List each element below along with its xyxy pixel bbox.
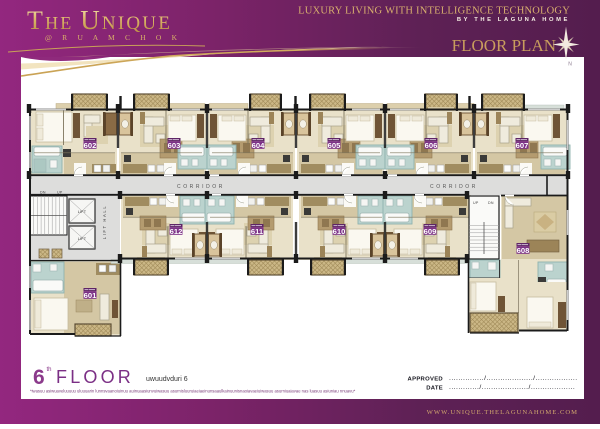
svg-text:612: 612 <box>170 227 183 236</box>
svg-text:UP: UP <box>473 201 479 205</box>
svg-text:DN: DN <box>40 191 46 195</box>
svg-text:606: 606 <box>425 141 438 150</box>
svg-text:DN: DN <box>488 201 494 205</box>
svg-text:601: 601 <box>84 291 97 300</box>
svg-text:LUXURY LIVING WITH INTELLIGENC: LUXURY LIVING WITH INTELLIGENCE TECHNOLO… <box>298 6 570 17</box>
svg-text:609: 609 <box>424 227 437 236</box>
svg-text:611: 611 <box>251 227 264 236</box>
svg-text:@ R U A M C H O K: @ R U A M C H O K <box>45 33 181 42</box>
svg-text:N: N <box>568 62 572 68</box>
svg-text:DATE: DATE <box>426 386 443 392</box>
svg-text:CORRIDOR: CORRIDOR <box>177 184 225 190</box>
svg-text:FLOOR PLAN: FLOOR PLAN <box>452 36 556 55</box>
svg-text:604: 604 <box>252 141 265 150</box>
svg-text:uwuudvduri 6: uwuudvduri 6 <box>146 376 188 383</box>
svg-text:UP: UP <box>57 191 63 195</box>
svg-text:603: 603 <box>168 141 181 150</box>
svg-text:LIFT: LIFT <box>78 210 87 214</box>
svg-text:LIFT: LIFT <box>78 237 87 241</box>
svg-text:FLOOR: FLOOR <box>56 367 134 387</box>
svg-text:th: th <box>47 367 52 373</box>
svg-text:605: 605 <box>328 141 341 150</box>
svg-text:BY THE LAGUNA HOME: BY THE LAGUNA HOME <box>457 17 570 23</box>
svg-text:607: 607 <box>516 141 529 150</box>
svg-text:610: 610 <box>333 227 346 236</box>
svg-text:APPROVED: APPROVED <box>408 377 443 383</box>
svg-text:LIFT HALL: LIFT HALL <box>102 205 107 240</box>
svg-text:CORRIDOR: CORRIDOR <box>430 184 478 190</box>
svg-text:............./................: ............./..................../.....… <box>449 384 575 391</box>
svg-text:6: 6 <box>33 366 45 389</box>
svg-text:602: 602 <box>84 141 97 150</box>
svg-text:.............../..............: .............../..................../...… <box>449 375 578 382</box>
svg-text:608: 608 <box>517 246 530 255</box>
svg-text:*iwasuu asiwuaveluuuuu uluuuar: *iwasuu asiwuaveluuuuu uluuuarin lunnsva… <box>30 389 356 394</box>
svg-text:WWW.UNIQUE.THELAGUNAHOME.COM: WWW.UNIQUE.THELAGUNAHOME.COM <box>427 409 578 416</box>
